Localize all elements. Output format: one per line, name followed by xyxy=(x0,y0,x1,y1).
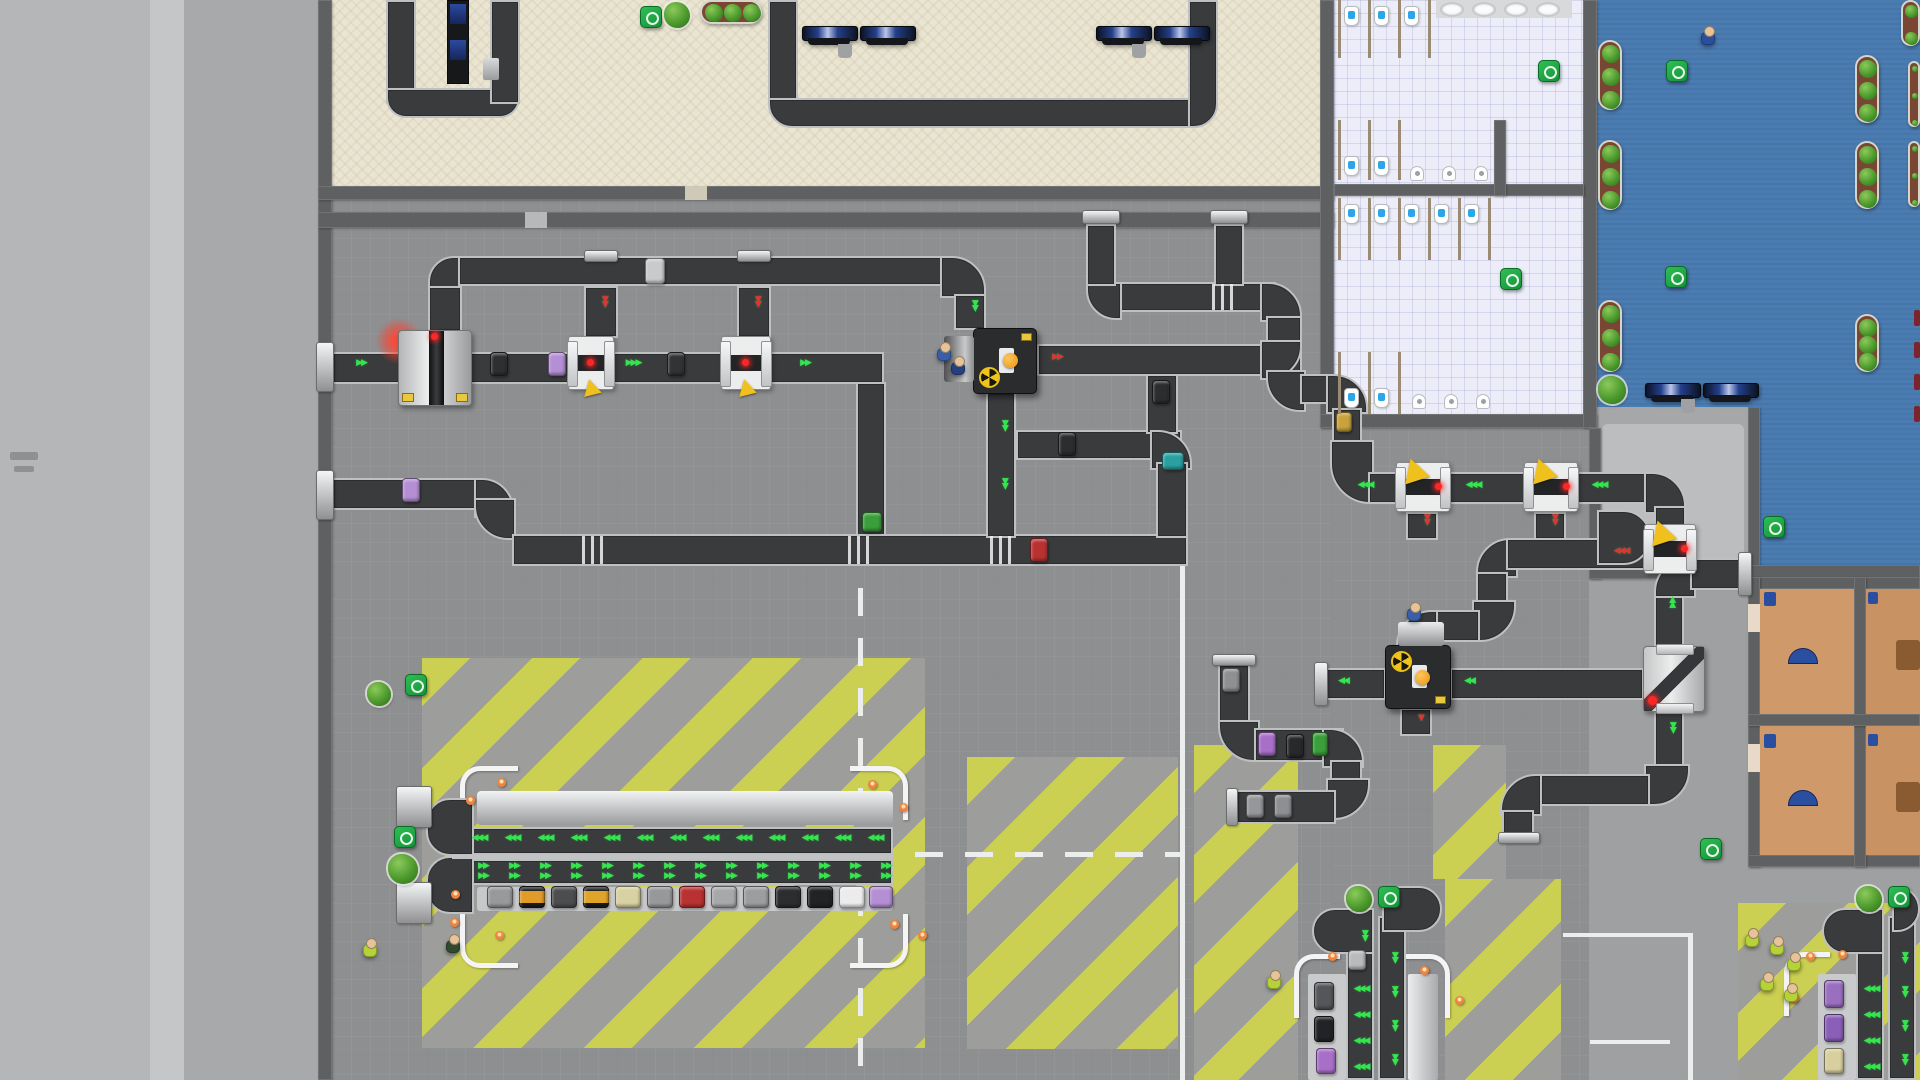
bag[interactable] xyxy=(551,886,577,908)
stall-wall xyxy=(1428,0,1431,58)
portal xyxy=(1212,654,1256,666)
arrows: ▶▶ xyxy=(780,861,806,871)
security-officer[interactable] xyxy=(1406,602,1422,622)
arrows: ◀◀◀ xyxy=(1858,984,1884,994)
office-door xyxy=(1748,744,1760,772)
arrows: ◀◀◀ xyxy=(829,833,855,843)
bush-planter[interactable] xyxy=(1908,141,1920,207)
wall xyxy=(1748,577,1920,589)
portal xyxy=(396,882,432,924)
recycle-bin[interactable] xyxy=(1700,838,1722,860)
urinal[interactable] xyxy=(1476,394,1490,409)
toilet[interactable] xyxy=(1344,388,1359,408)
arrows: ▶▶ xyxy=(1390,1012,1400,1038)
dash xyxy=(582,536,608,564)
arrows: ▶▶ xyxy=(656,871,682,881)
bag[interactable] xyxy=(583,886,609,908)
bush[interactable] xyxy=(1856,886,1882,912)
hazard-zone-south xyxy=(967,757,1178,1049)
office-item-blue xyxy=(1764,734,1776,748)
wall xyxy=(1494,120,1506,196)
arrows: ◀◀◀ xyxy=(466,833,492,843)
stall-wall xyxy=(1398,0,1401,58)
game-viewport: ▶▶▶▶▶▶▶▶▶▶▶▶▶▶▶▶▶▶▶◀◀◀◀◀◀◀◀◀▶▶▶▶◀◀◀◀◀◀◀▶… xyxy=(0,0,1920,1080)
tarmac-outer xyxy=(0,0,150,1080)
bush-planter[interactable] xyxy=(1908,61,1920,127)
bush-planter[interactable] xyxy=(1598,40,1622,110)
recycle-bin[interactable] xyxy=(1666,60,1688,82)
arrows: ▶▶ xyxy=(1900,1046,1910,1072)
belt xyxy=(1214,224,1244,286)
arrows: ▶▶ xyxy=(970,292,980,318)
arrows: ▶▶ xyxy=(749,871,775,881)
hazard-zone-bay1-ne xyxy=(1433,745,1506,879)
tilt-tray-scanner[interactable] xyxy=(1644,524,1696,574)
cone[interactable] xyxy=(1455,996,1464,1005)
bush-planter[interactable] xyxy=(1598,140,1622,210)
recycle-bin[interactable] xyxy=(1888,886,1910,908)
urinal[interactable] xyxy=(1410,166,1424,181)
bag[interactable] xyxy=(1152,380,1170,404)
toilet[interactable] xyxy=(1404,6,1419,26)
road-dashed-line xyxy=(865,852,1180,857)
bag[interactable] xyxy=(1824,1014,1844,1042)
bag[interactable] xyxy=(1316,1048,1336,1074)
checkin-desk[interactable] xyxy=(860,26,914,46)
checkin-desk[interactable] xyxy=(1096,26,1150,46)
arrows: ▶▶ xyxy=(1900,978,1910,1004)
arrows: ▶▶ xyxy=(1000,470,1010,496)
arrows: ◀◀◀ xyxy=(1348,984,1374,994)
bay-slab xyxy=(1408,974,1438,1080)
arrows: ▶▶ xyxy=(718,871,744,881)
dash xyxy=(848,536,874,564)
hazard-zone-bay1-east xyxy=(1445,879,1561,1080)
stall-wall xyxy=(1488,198,1491,260)
portal xyxy=(1082,210,1120,224)
bag[interactable] xyxy=(647,886,673,908)
cone[interactable] xyxy=(466,796,475,805)
tilt-tray-scanner[interactable] xyxy=(1396,462,1450,512)
claim-corner-marking xyxy=(850,914,908,968)
xray-machine[interactable] xyxy=(973,328,1037,394)
arrows: ◀◀◀ xyxy=(1348,1062,1374,1072)
arrows: ▶▶ xyxy=(625,871,651,881)
arrows: ▶▶ xyxy=(563,871,589,881)
arrows: ◀◀ xyxy=(1330,676,1356,686)
portal xyxy=(584,250,618,262)
toilet[interactable] xyxy=(1404,204,1419,224)
stall-wall xyxy=(1338,352,1341,414)
belt xyxy=(1690,558,1742,590)
wall xyxy=(318,212,1334,228)
portal xyxy=(737,250,771,262)
bush-planter[interactable] xyxy=(1901,0,1920,46)
arrows: ◀◀◀ xyxy=(763,833,789,843)
arrows: ▶▶ xyxy=(811,871,837,881)
arrows: ▶▶ xyxy=(873,871,899,881)
sorter-machine[interactable] xyxy=(1643,646,1705,712)
ramp-agent[interactable] xyxy=(1769,936,1785,956)
belt xyxy=(1037,344,1267,376)
sink[interactable] xyxy=(1504,2,1528,17)
cone[interactable] xyxy=(1328,952,1337,961)
urinal[interactable] xyxy=(1442,166,1456,181)
arrows: ◀◀◀ xyxy=(532,833,558,843)
bag[interactable] xyxy=(711,886,737,908)
wall xyxy=(1748,855,1920,867)
bush[interactable] xyxy=(1598,376,1626,404)
bag[interactable] xyxy=(1824,1048,1844,1074)
bag[interactable] xyxy=(1222,668,1240,692)
bush-planter[interactable] xyxy=(1598,300,1622,372)
belt xyxy=(1540,774,1650,806)
tilt-tray-scanner[interactable] xyxy=(1524,462,1578,512)
bag[interactable] xyxy=(775,886,801,908)
arrows: ▶▶ xyxy=(687,861,713,871)
arrows: ▶▶ xyxy=(348,358,374,368)
apron xyxy=(184,0,318,1080)
arrows: ▶▶ xyxy=(718,861,744,871)
bush-planter[interactable] xyxy=(700,0,762,24)
arrows: ◀◀◀ xyxy=(565,833,591,843)
arrows: ▶▶ xyxy=(687,871,713,881)
bench[interactable] xyxy=(1914,406,1920,422)
cone[interactable] xyxy=(1806,952,1815,961)
ramp-agent[interactable] xyxy=(1786,952,1802,972)
bag[interactable] xyxy=(1314,982,1334,1010)
arrows: ▶▶ xyxy=(1900,1012,1910,1038)
recycle-bin[interactable] xyxy=(1500,268,1522,290)
sink[interactable] xyxy=(1472,2,1496,17)
bag[interactable] xyxy=(1312,732,1328,756)
arrows: ▶▶ xyxy=(749,861,775,871)
wall xyxy=(318,186,1334,200)
arrows: ▶▶ xyxy=(1044,352,1070,362)
wood-desk xyxy=(1896,782,1920,812)
bag[interactable] xyxy=(615,886,641,908)
arrows: ▶▶ xyxy=(594,871,620,881)
belt xyxy=(1086,224,1116,286)
portal xyxy=(1498,832,1540,844)
bush-planter[interactable] xyxy=(1855,55,1879,123)
checkin-bag-belt[interactable] xyxy=(447,0,469,84)
cone[interactable] xyxy=(918,931,927,940)
bag[interactable] xyxy=(1348,950,1366,970)
arrows: ▶▶ xyxy=(873,861,899,871)
toilet[interactable] xyxy=(1464,204,1479,224)
arrows: ▶▶ xyxy=(1668,714,1678,740)
bush-planter[interactable] xyxy=(1855,141,1879,209)
toilet[interactable] xyxy=(1344,6,1359,26)
hall-door xyxy=(685,186,707,200)
arrows: ▶▶ xyxy=(780,871,806,881)
xray-machine[interactable] xyxy=(1385,645,1451,709)
recycle-bin[interactable] xyxy=(1538,60,1560,82)
arrows: ◀◀◀ xyxy=(1348,1036,1374,1046)
arrows: ▶▶ xyxy=(625,861,651,871)
arrows: ▶▶ xyxy=(532,871,558,881)
bush[interactable] xyxy=(1346,886,1372,912)
belt xyxy=(428,286,462,332)
toilet[interactable] xyxy=(1344,156,1359,176)
arrows: ▶▶ xyxy=(1000,412,1010,438)
stand-line xyxy=(1688,933,1693,1080)
arrows: ▶▶ xyxy=(1550,506,1560,532)
arrows: ▶▶ xyxy=(1390,978,1400,1004)
office-door xyxy=(1748,604,1760,632)
arrows: ▶▶ xyxy=(1668,590,1678,616)
wall xyxy=(1334,184,1584,196)
arrows: ◀◀◀ xyxy=(1858,1062,1884,1072)
arrows: ▶▶ xyxy=(532,861,558,871)
dash xyxy=(990,536,1016,564)
cone[interactable] xyxy=(495,931,504,940)
stall-wall xyxy=(1368,120,1371,180)
arrows: ▶▶ xyxy=(842,861,868,871)
bush[interactable] xyxy=(367,682,391,706)
arrows: ▶▶ xyxy=(470,861,496,871)
desk-stand xyxy=(838,44,852,58)
arrows: ▶▶ xyxy=(501,871,527,881)
arrows: ▶▶ xyxy=(1390,944,1400,970)
arrows: ◀◀◀ xyxy=(1352,480,1378,490)
belt xyxy=(1118,282,1276,312)
belt xyxy=(1822,908,1884,954)
arrows: ▶▶ xyxy=(594,861,620,871)
arrows: ◀◀◀ xyxy=(664,833,690,843)
arrows: ◀◀◀ xyxy=(1460,480,1486,490)
portal xyxy=(1210,210,1248,224)
wall xyxy=(318,0,332,1080)
arrows: ◀◀◀ xyxy=(1586,480,1612,490)
checkin-desk[interactable] xyxy=(802,26,856,46)
stall-wall xyxy=(1338,198,1341,260)
belt xyxy=(768,98,1218,128)
claim-belt-gap xyxy=(452,855,893,859)
arrows: ▶▶ xyxy=(470,871,496,881)
stall-wall xyxy=(1398,198,1401,260)
ramp-agent[interactable] xyxy=(1744,928,1760,948)
recycle-bin[interactable] xyxy=(640,6,662,28)
arrows: ▶▶ xyxy=(842,871,868,881)
portal xyxy=(396,786,432,828)
bag[interactable] xyxy=(1246,794,1264,818)
hall-door xyxy=(525,212,547,228)
cone[interactable] xyxy=(450,918,459,927)
stall-wall xyxy=(1368,0,1371,58)
ramp-agent[interactable] xyxy=(362,938,378,958)
arrows: ▶▶ xyxy=(1360,922,1370,948)
passenger[interactable] xyxy=(445,934,461,954)
baggage-scanner[interactable] xyxy=(721,336,771,390)
checkin-desk[interactable] xyxy=(1154,26,1208,46)
bag[interactable] xyxy=(743,886,769,908)
arrows: ◀◀◀ xyxy=(598,833,624,843)
arrows: ◀◀ xyxy=(1456,676,1482,686)
bag[interactable] xyxy=(667,352,685,376)
bag[interactable] xyxy=(1286,734,1304,758)
stall-wall xyxy=(1338,0,1341,58)
portal xyxy=(316,470,334,520)
bag[interactable] xyxy=(869,886,893,908)
stand-line xyxy=(1563,933,1693,937)
cone[interactable] xyxy=(899,803,908,812)
arrows: ◀◀◀ xyxy=(631,833,657,843)
bag[interactable] xyxy=(519,886,545,908)
bag[interactable] xyxy=(807,886,833,908)
bush[interactable] xyxy=(664,2,690,28)
claim-belt-guard xyxy=(477,791,893,825)
recycle-bin[interactable] xyxy=(405,674,427,696)
portal xyxy=(1226,788,1238,826)
arrows: ◀◀◀ xyxy=(499,833,525,843)
bag[interactable] xyxy=(490,352,508,376)
belt xyxy=(458,256,944,286)
urinal[interactable] xyxy=(1474,166,1488,181)
expansion-joint xyxy=(10,452,38,460)
checkin-kiosk xyxy=(483,58,499,80)
wall xyxy=(1583,0,1597,428)
expansion-joint xyxy=(14,466,34,472)
arrows: ▶▶ xyxy=(600,288,610,314)
belt xyxy=(490,0,520,104)
urinal[interactable] xyxy=(1444,394,1458,409)
baggage-scanner-alarmed[interactable] xyxy=(398,330,472,406)
belt xyxy=(1188,0,1218,128)
belt xyxy=(426,856,474,914)
bag[interactable] xyxy=(679,886,705,908)
wall xyxy=(1320,0,1334,428)
cone[interactable] xyxy=(1838,950,1847,959)
stall-wall xyxy=(1428,198,1431,260)
bag[interactable] xyxy=(402,478,420,502)
arrows: ▶▶ xyxy=(811,861,837,871)
toilet[interactable] xyxy=(1374,6,1389,26)
arrows: ▶▶ xyxy=(792,358,818,368)
portal xyxy=(316,342,334,392)
arrows: ◀◀◀ xyxy=(1608,546,1634,556)
security-officer[interactable] xyxy=(950,356,966,376)
urinal[interactable] xyxy=(1412,394,1426,409)
wall xyxy=(1748,714,1920,726)
bag[interactable] xyxy=(1274,794,1292,818)
arrows: ◀◀◀ xyxy=(730,833,756,843)
arrows: ◀◀◀ xyxy=(697,833,723,843)
recycle-bin[interactable] xyxy=(1763,516,1785,538)
bag[interactable] xyxy=(839,886,865,908)
portal xyxy=(1738,552,1752,596)
belt xyxy=(768,0,798,104)
arrows: ▶▶ xyxy=(563,861,589,871)
bag[interactable] xyxy=(1058,432,1076,456)
arrows: ◀◀◀ xyxy=(796,833,822,843)
cone[interactable] xyxy=(868,780,877,789)
bag[interactable] xyxy=(1162,452,1184,470)
bag[interactable] xyxy=(645,258,665,284)
arrows: ▶▶ xyxy=(501,861,527,871)
cone[interactable] xyxy=(497,778,506,787)
cone[interactable] xyxy=(451,890,460,899)
dash xyxy=(1212,284,1238,310)
recycle-bin[interactable] xyxy=(394,826,416,848)
bag[interactable] xyxy=(1824,980,1844,1008)
passenger[interactable] xyxy=(1700,26,1716,46)
stall-wall xyxy=(1398,352,1401,414)
stall-wall xyxy=(1368,198,1371,260)
stall-wall xyxy=(1338,120,1341,180)
arrows: ◀◀◀ xyxy=(1858,1036,1884,1046)
cone[interactable] xyxy=(1420,966,1429,975)
gate-desk[interactable] xyxy=(1703,383,1757,403)
bag[interactable] xyxy=(487,886,513,908)
sink[interactable] xyxy=(1440,2,1464,17)
toilet[interactable] xyxy=(1374,204,1389,224)
bag[interactable] xyxy=(1336,412,1352,432)
arrows: ◀◀◀ xyxy=(1858,1010,1884,1020)
toilet[interactable] xyxy=(1434,204,1449,224)
office-item-blue xyxy=(1868,592,1878,604)
toilet[interactable] xyxy=(1344,204,1359,224)
arrows: ▶▶ xyxy=(656,861,682,871)
ramp-agent[interactable] xyxy=(1783,983,1799,1003)
stand-line xyxy=(1590,1040,1670,1044)
arrows: ▶▶ xyxy=(1422,506,1432,532)
arrows: ▶▶ xyxy=(1900,944,1910,970)
wall xyxy=(1748,407,1760,567)
portal xyxy=(1314,662,1328,706)
bag[interactable] xyxy=(862,512,882,532)
bench[interactable] xyxy=(1914,310,1920,326)
bush[interactable] xyxy=(388,854,418,884)
arrows: ▶▶▶ xyxy=(620,358,646,368)
recycle-bin[interactable] xyxy=(1378,886,1400,908)
bag[interactable] xyxy=(1314,1016,1334,1042)
recycle-bin[interactable] xyxy=(1665,266,1687,288)
stall-wall xyxy=(1398,120,1401,180)
bag[interactable] xyxy=(1030,538,1048,562)
arrows: ▶▶ xyxy=(753,288,763,314)
sink[interactable] xyxy=(1536,2,1560,17)
scanner-console xyxy=(1398,622,1444,646)
road-line xyxy=(1180,538,1185,1080)
arrows: ▶▶ xyxy=(1390,1046,1400,1072)
stall-wall xyxy=(1458,198,1461,260)
bush-planter[interactable] xyxy=(1855,314,1879,372)
arrows: ◀◀◀ xyxy=(862,833,888,843)
office-item-blue xyxy=(1868,734,1878,746)
baggage-scanner[interactable] xyxy=(568,336,614,390)
wood-desk xyxy=(1896,640,1920,670)
ramp-agent[interactable] xyxy=(1266,970,1282,990)
bench[interactable] xyxy=(1914,374,1920,390)
ramp-agent[interactable] xyxy=(1759,972,1775,992)
cone[interactable] xyxy=(890,920,899,929)
desk-stand xyxy=(1681,399,1695,413)
toilet[interactable] xyxy=(1374,156,1389,176)
tarmac-band xyxy=(150,0,184,1080)
toilet[interactable] xyxy=(1374,388,1389,408)
arrows: ▶ xyxy=(1416,704,1426,730)
desk-stand xyxy=(1132,44,1146,58)
bag[interactable] xyxy=(548,352,566,376)
belt xyxy=(426,798,474,856)
belt xyxy=(1156,462,1188,538)
bag[interactable] xyxy=(1258,732,1276,756)
bench[interactable] xyxy=(1914,342,1920,358)
office-item-blue xyxy=(1764,592,1776,606)
claim-corner-marking xyxy=(460,914,518,968)
